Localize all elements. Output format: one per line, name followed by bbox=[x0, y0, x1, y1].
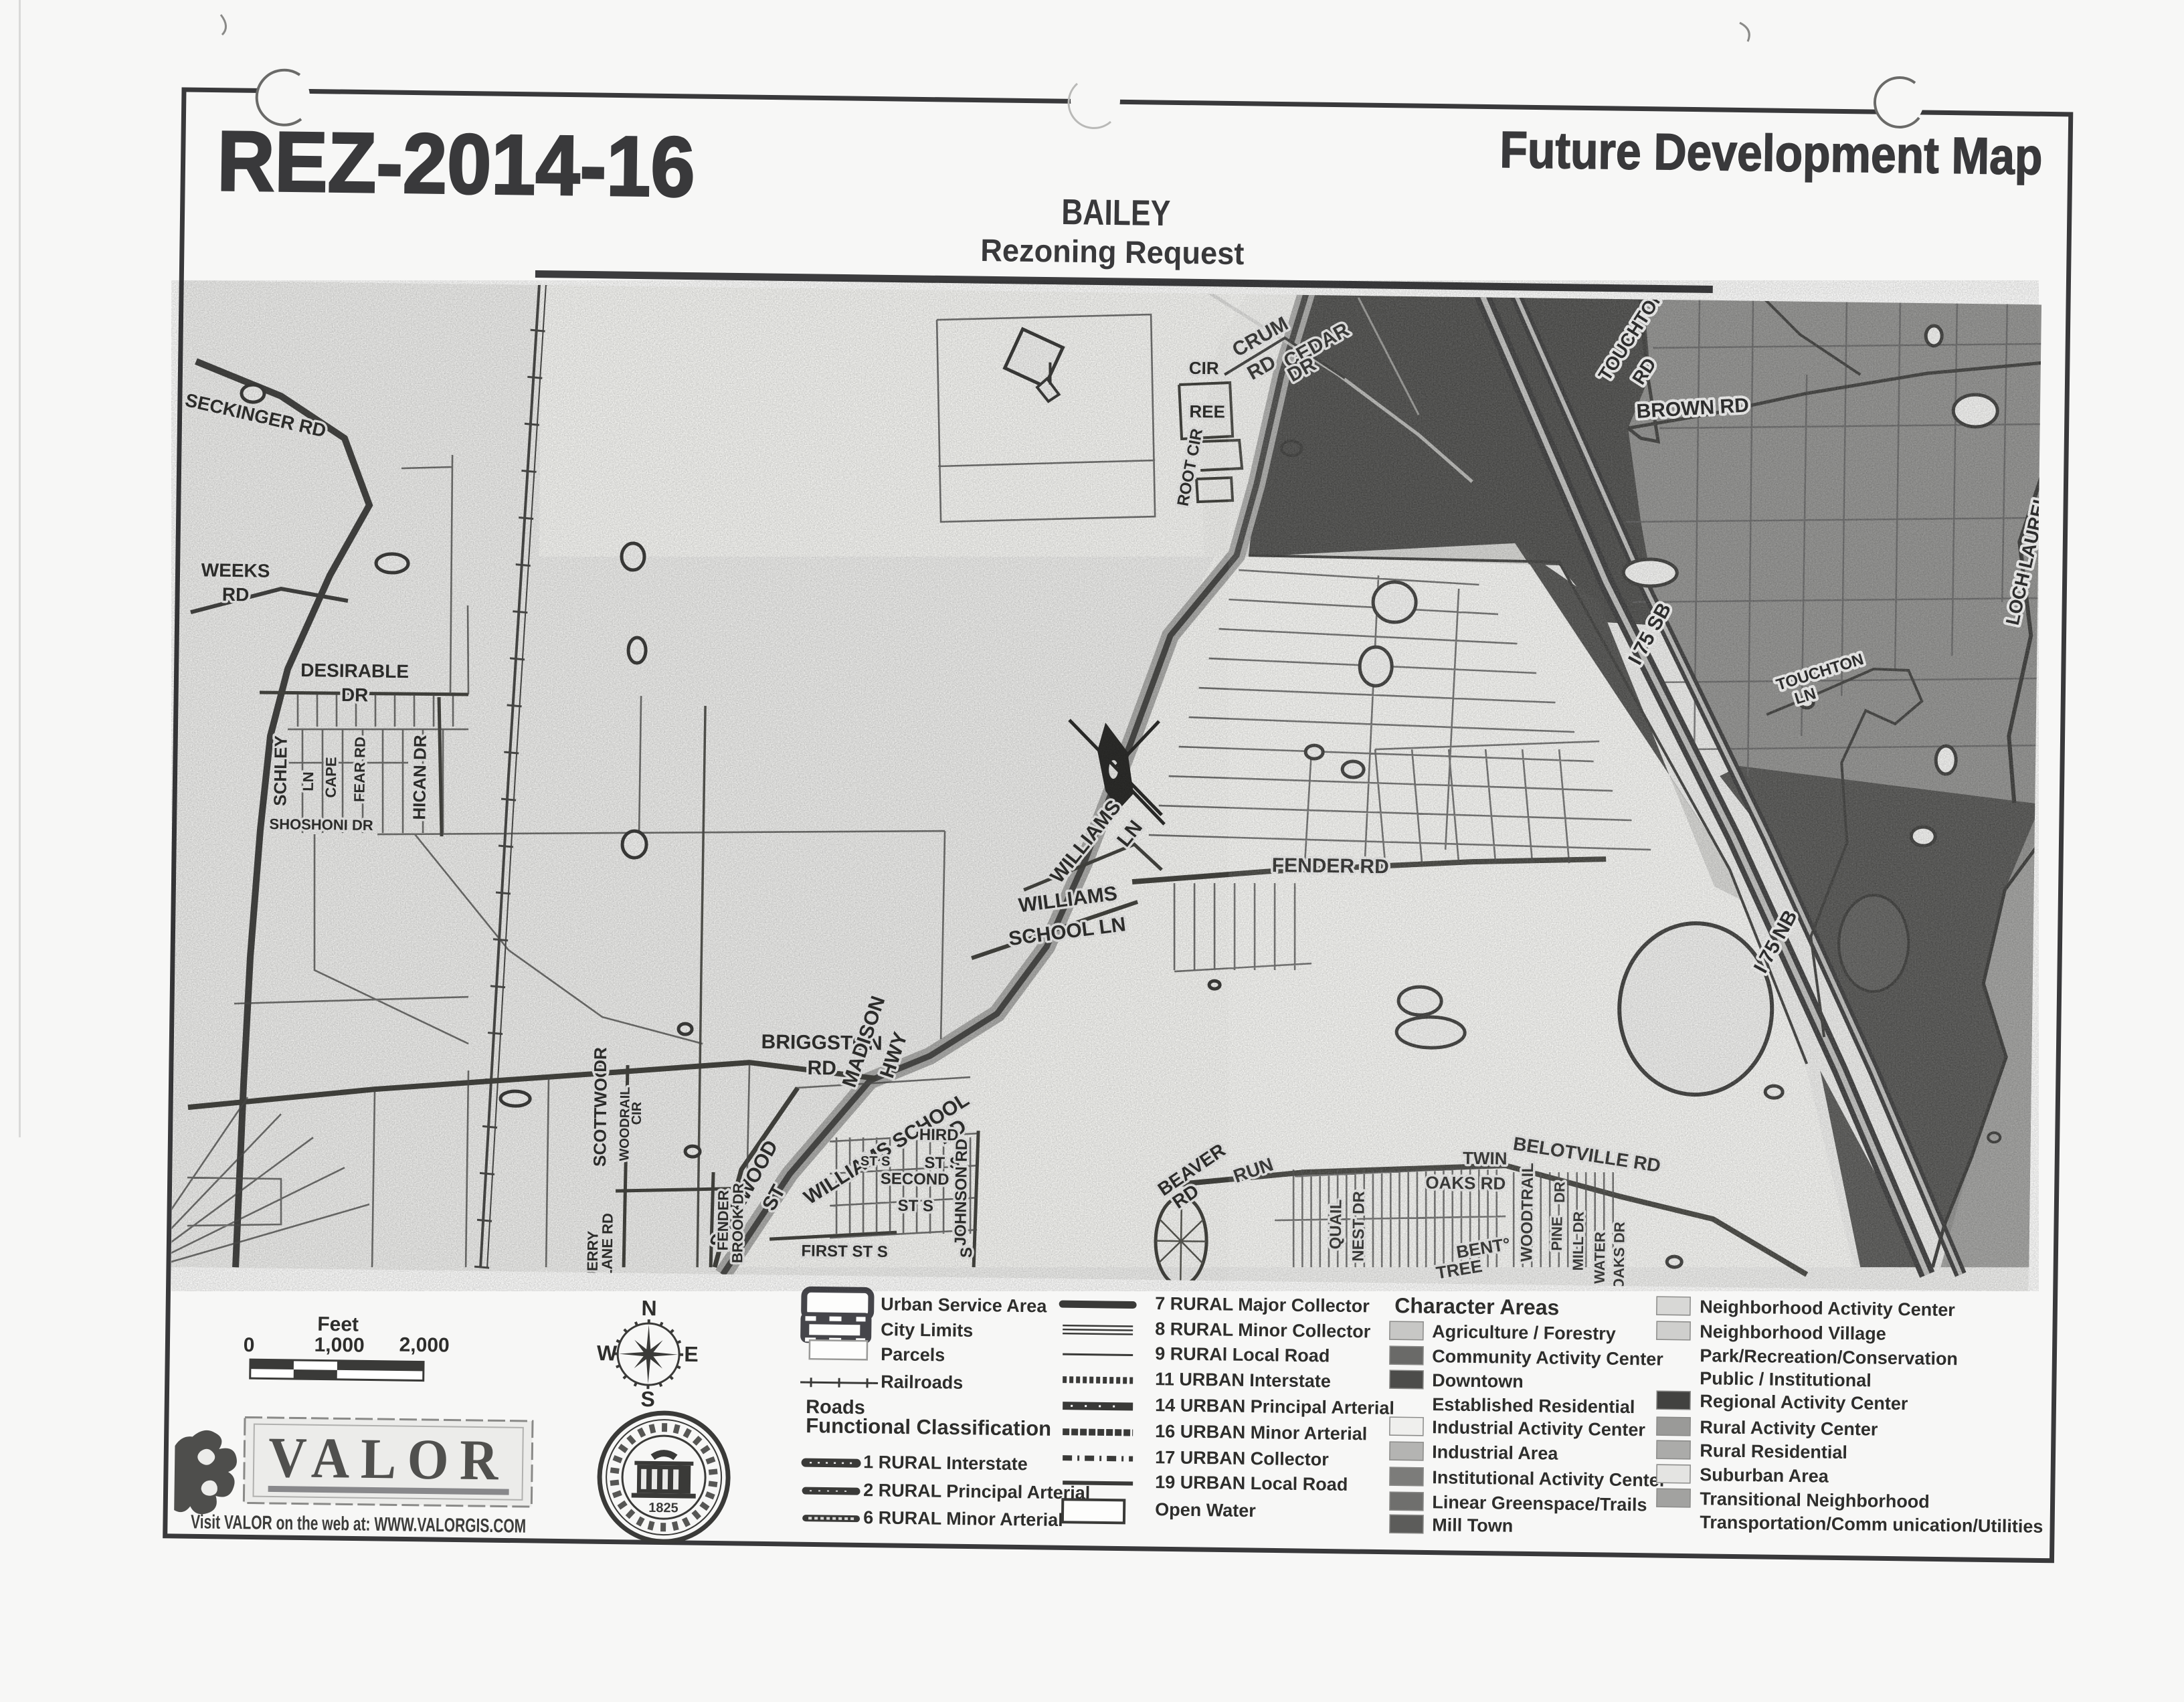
svg-text:S: S bbox=[640, 1387, 655, 1411]
svg-text:7 RURAL Major Collector: 7 RURAL Major Collector bbox=[1155, 1293, 1370, 1316]
svg-text:VALOR: VALOR bbox=[268, 1425, 510, 1493]
svg-text:8 RURAL Minor Collector: 8 RURAL Minor Collector bbox=[1155, 1319, 1371, 1341]
svg-text:City Limits: City Limits bbox=[881, 1319, 973, 1341]
svg-text:Future Development Map: Future Development Map bbox=[1499, 121, 2043, 186]
svg-text:W: W bbox=[597, 1341, 618, 1365]
svg-text:Institutional Activity Center: Institutional Activity Center bbox=[1432, 1467, 1667, 1491]
svg-text:Character Areas: Character Areas bbox=[1394, 1293, 1560, 1319]
svg-text:Visit VALOR on the web at: WWW: Visit VALOR on the web at: WWW.VALORGIS.… bbox=[191, 1511, 526, 1537]
svg-text:6 RURAL Minor Arterial: 6 RURAL Minor Arterial bbox=[863, 1507, 1063, 1530]
svg-text:Regional Activity Center: Regional Activity Center bbox=[1700, 1391, 1908, 1414]
svg-text:Agriculture / Forestry: Agriculture / Forestry bbox=[1432, 1321, 1616, 1344]
svg-text:BAILEY: BAILEY bbox=[1061, 192, 1171, 233]
svg-text:Feet: Feet bbox=[317, 1313, 359, 1336]
svg-text:Industrial Area: Industrial Area bbox=[1432, 1442, 1558, 1463]
svg-text:1 RURAL Interstate: 1 RURAL Interstate bbox=[863, 1452, 1028, 1474]
svg-text:Linear Greenspace/Trails: Linear Greenspace/Trails bbox=[1432, 1492, 1647, 1515]
svg-text:Rezoning Request: Rezoning Request bbox=[980, 232, 1245, 271]
svg-text:Community Activity Center: Community Activity Center bbox=[1432, 1346, 1663, 1369]
svg-text:Neighborhood Activity Center: Neighborhood Activity Center bbox=[1700, 1297, 1955, 1320]
svg-text:Established Residential: Established Residential bbox=[1432, 1394, 1635, 1417]
svg-text:Public / Institutional: Public / Institutional bbox=[1700, 1368, 1872, 1390]
svg-text:Downtown: Downtown bbox=[1432, 1370, 1524, 1392]
svg-text:Neighborhood Village: Neighborhood Village bbox=[1700, 1321, 1886, 1344]
svg-text:Transitional Neighborhood: Transitional Neighborhood bbox=[1700, 1489, 1930, 1511]
svg-text:Parcels: Parcels bbox=[881, 1344, 945, 1365]
svg-text:2 RURAL Principal Arterial: 2 RURAL Principal Arterial bbox=[863, 1480, 1090, 1503]
svg-text:Industrial Activity Center: Industrial Activity Center bbox=[1432, 1417, 1645, 1440]
svg-text:11 URBAN Interstate: 11 URBAN Interstate bbox=[1155, 1369, 1331, 1391]
svg-text:14 URBAN Principal Arterial: 14 URBAN Principal Arterial bbox=[1155, 1395, 1394, 1418]
svg-text:Park/Recreation/Conservation: Park/Recreation/Conservation bbox=[1700, 1345, 1958, 1369]
svg-text:2,000: 2,000 bbox=[399, 1334, 450, 1357]
svg-text:1,000: 1,000 bbox=[314, 1334, 365, 1357]
svg-text:19 URBAN Local Road: 19 URBAN Local Road bbox=[1155, 1472, 1348, 1495]
svg-text:REZ-2014-16: REZ-2014-16 bbox=[217, 113, 696, 214]
svg-text:16 URBAN Minor Arterial: 16 URBAN Minor Arterial bbox=[1155, 1421, 1367, 1444]
svg-text:Rural Residential: Rural Residential bbox=[1700, 1440, 1847, 1462]
svg-text:0: 0 bbox=[244, 1334, 255, 1356]
svg-text:N: N bbox=[641, 1296, 657, 1320]
svg-text:Urban Service Area: Urban Service Area bbox=[881, 1294, 1047, 1316]
svg-text:Open Water: Open Water bbox=[1155, 1499, 1256, 1521]
svg-text:1825: 1825 bbox=[648, 1501, 678, 1516]
svg-text:9 RURAl Local Road: 9 RURAl Local Road bbox=[1155, 1343, 1330, 1365]
svg-text:E: E bbox=[684, 1342, 699, 1366]
svg-text:Railroads: Railroads bbox=[881, 1372, 963, 1393]
svg-text:Suburban Area: Suburban Area bbox=[1700, 1464, 1829, 1487]
svg-text:Functional Classification: Functional Classification bbox=[806, 1414, 1051, 1440]
svg-text:Mill Town: Mill Town bbox=[1432, 1515, 1513, 1536]
svg-text:Rural Activity Center: Rural Activity Center bbox=[1700, 1417, 1878, 1439]
svg-text:17 URBAN Collector: 17 URBAN Collector bbox=[1155, 1447, 1329, 1469]
